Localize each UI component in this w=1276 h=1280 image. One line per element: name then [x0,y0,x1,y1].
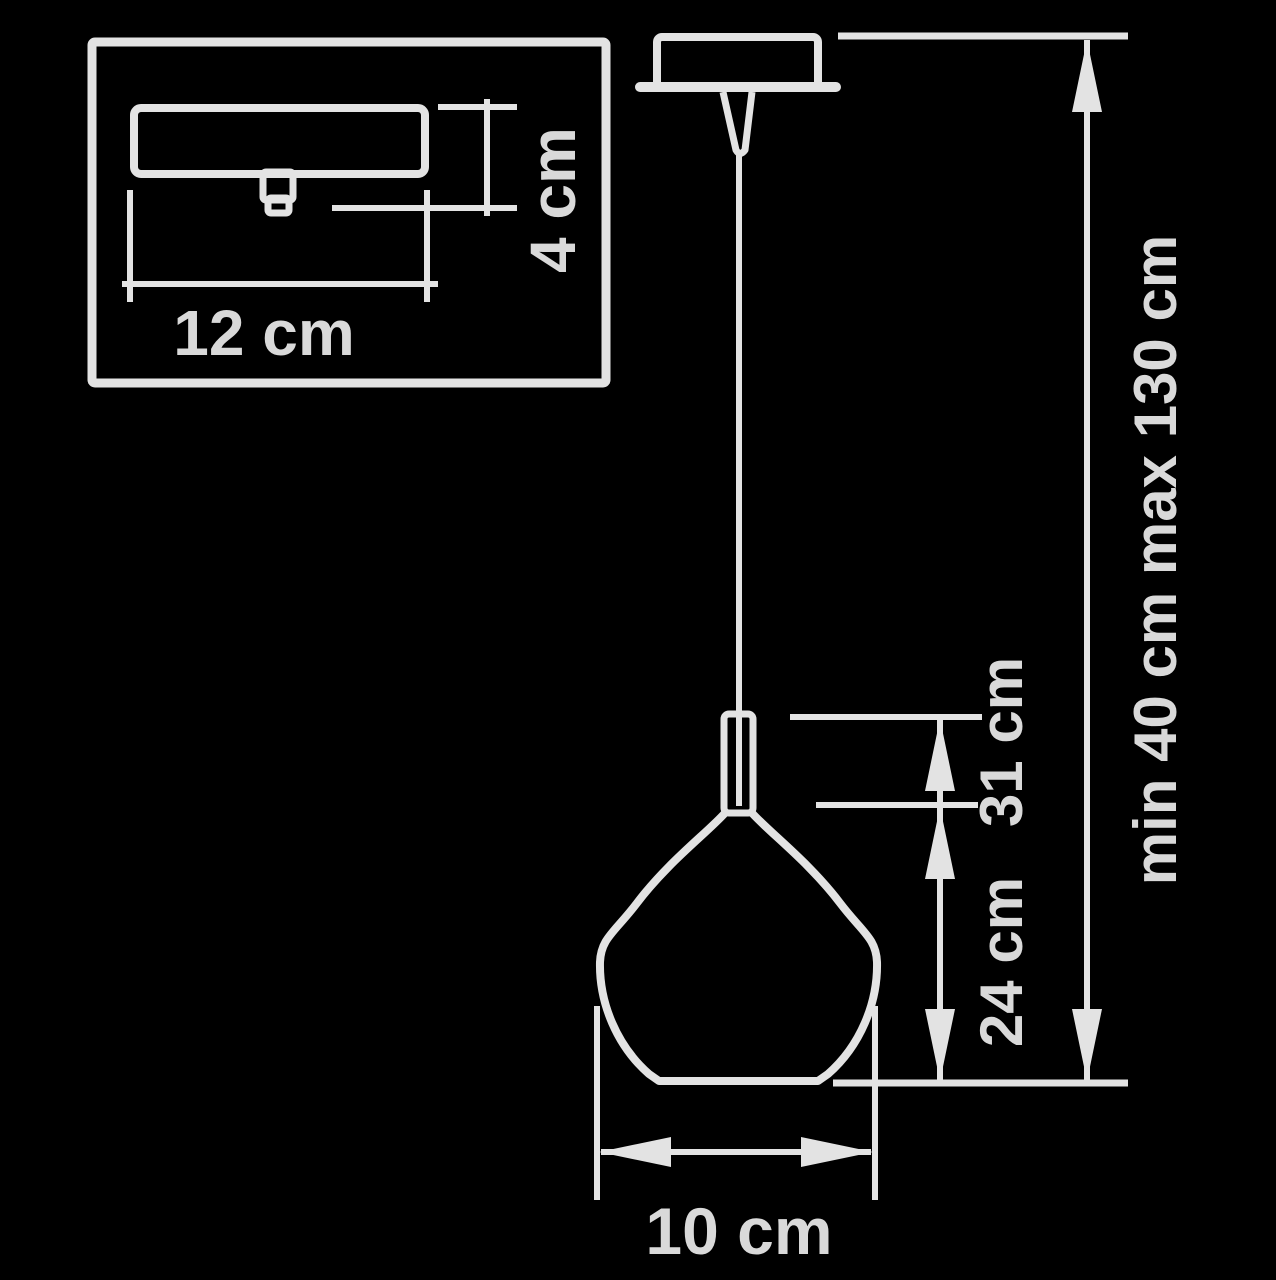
arrowhead-up [925,807,955,879]
strain-relief-cone [723,92,752,154]
inset-canopy-body [134,108,425,174]
inset-width-dimension: 12 cm [122,190,438,369]
diagram-canvas: 12 cm 4 cm min 40 cm max 130 cm [0,0,1276,1280]
shade-width-label: 10 cm [645,1194,832,1268]
inset-height-dimension: 4 cm [332,99,589,273]
shade-outline [600,813,877,1081]
arrowhead-down [1072,1009,1102,1081]
shade-height-label: 24 cm [968,877,1035,1047]
overall-height-label: min 40 cm max 130 cm [1122,235,1189,885]
arrowhead-down [925,1009,955,1081]
inset-plug-lower [268,198,289,213]
arrowhead-up [925,719,955,791]
inset-width-label: 12 cm [173,297,354,369]
inset-panel: 12 cm 4 cm [92,42,606,383]
shade-width-dimension: 10 cm [597,1006,875,1268]
arrowhead-up [1072,40,1102,112]
inset-height-label: 4 cm [517,127,589,273]
canopy-box [657,37,818,87]
pendant-dimension-diagram: 12 cm 4 cm min 40 cm max 130 cm [0,0,1276,1280]
pendant-side-view [600,37,877,1081]
arrowhead-left [599,1137,671,1167]
suspension-to-shade-label: 31 cm [968,657,1035,827]
arrowhead-right [801,1137,873,1167]
